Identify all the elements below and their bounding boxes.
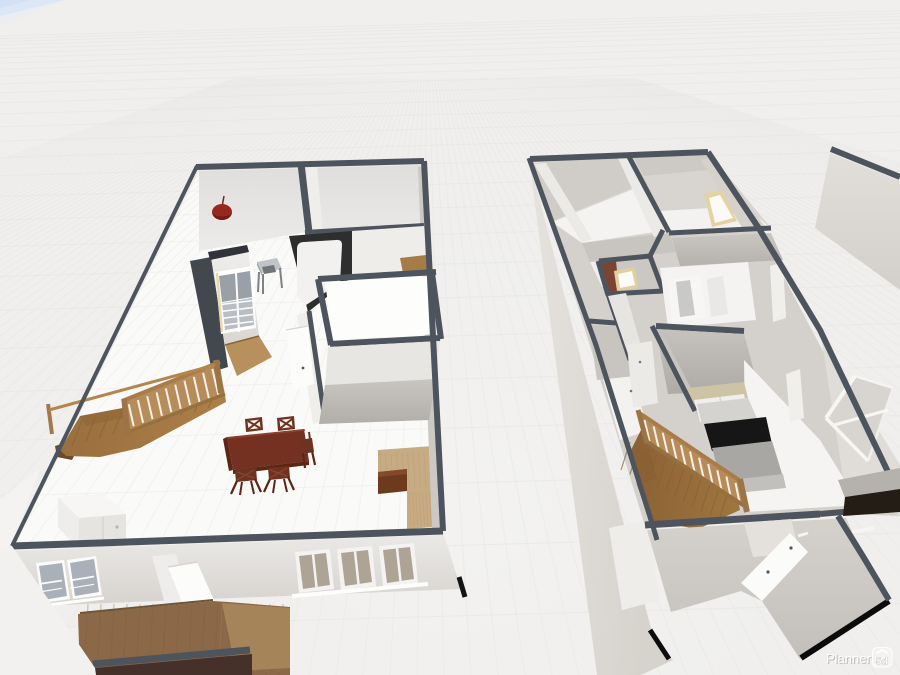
svg-text:Planner: Planner — [826, 651, 871, 666]
svg-text:5d: 5d — [876, 656, 888, 668]
